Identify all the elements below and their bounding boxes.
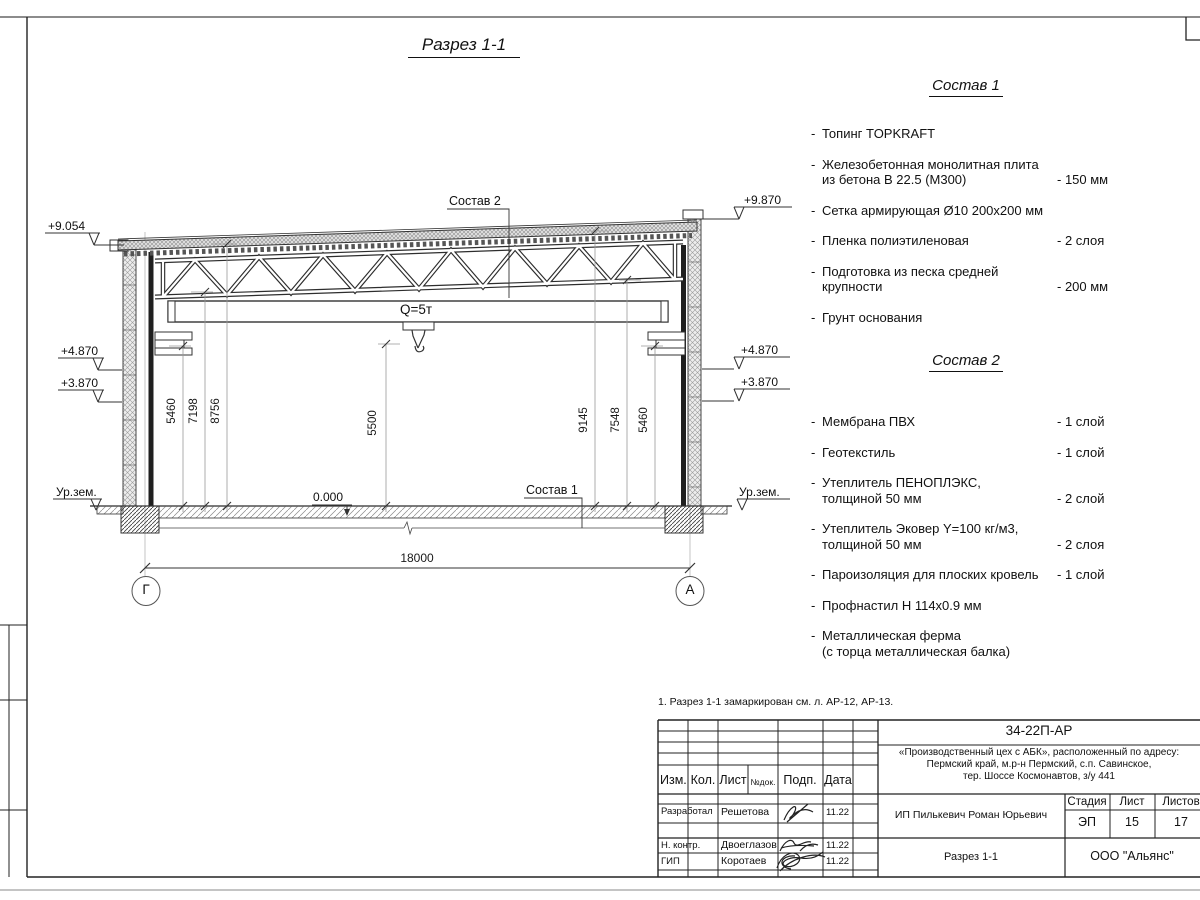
list-item: - Металлическая ферма(с торца металличес… bbox=[811, 628, 1171, 659]
row3-role: ГИП bbox=[661, 857, 680, 867]
item-text: Топинг TOPKRAFT bbox=[822, 126, 935, 142]
item-text: Железобетонная монолитная плита bbox=[822, 157, 1039, 172]
bullet: - bbox=[811, 203, 822, 219]
drawing-sheet: Разрез 1-1 Состав 2 Состав 1 Q=5т 0.000 … bbox=[0, 0, 1200, 900]
list-item: - Подготовка из песка среднейкрупности -… bbox=[811, 264, 1171, 295]
dim-span-18000: 18000 bbox=[400, 552, 433, 565]
list-item: - Топинг TOPKRAFT bbox=[811, 126, 1171, 142]
item-text: Грунт основания bbox=[822, 310, 922, 326]
level-zero-label: 0.000 bbox=[313, 491, 343, 504]
dim-5460-right: 5460 bbox=[638, 385, 650, 455]
bullet: - bbox=[811, 567, 822, 583]
project-address-3: тер. Шоссе Космонавтов, з/у 441 bbox=[963, 771, 1115, 782]
sheet-note: 1. Разрез 1-1 замаркирован см. л. АР-12,… bbox=[658, 697, 893, 709]
page-title: Разрез 1-1 bbox=[408, 36, 520, 58]
item-value: - 1 слой bbox=[1057, 445, 1105, 461]
item-text: Подготовка из песка средней bbox=[822, 264, 998, 279]
crane-trolley bbox=[403, 322, 434, 330]
bullet: - bbox=[811, 157, 822, 188]
item-value: - 2 слоя bbox=[1057, 537, 1104, 553]
list-item: - Утеплитель Эковер Y=100 кг/м3,толщиной… bbox=[811, 521, 1171, 552]
sheets-total-value: 17 bbox=[1174, 816, 1188, 830]
item-value: - 200 мм bbox=[1057, 279, 1108, 295]
item-text-2: (с торца металлическая балка) bbox=[822, 644, 1010, 659]
row2-name: Двоеглазов bbox=[721, 840, 777, 852]
item-text: Пленка полиэтиленовая bbox=[822, 233, 969, 249]
dim-7198: 7198 bbox=[188, 376, 200, 446]
item-text-2: толщиной 50 мм bbox=[822, 491, 922, 506]
item-text: Пароизоляция для плоских кровель bbox=[822, 567, 1039, 583]
dim-8756: 8756 bbox=[210, 376, 222, 446]
bullet: - bbox=[811, 628, 822, 659]
bullet: - bbox=[811, 445, 822, 461]
row3-name: Коротаев bbox=[721, 856, 766, 868]
sostav2-title: Состав 2 bbox=[929, 353, 1003, 372]
list-item: - Грунт основания bbox=[811, 310, 1171, 326]
col-ndok: №док. bbox=[751, 778, 776, 787]
ground-level-right: Ур.зем. bbox=[739, 486, 780, 499]
leader-lines bbox=[447, 209, 582, 528]
list-item: - Геотекстиль - 1 слой bbox=[811, 445, 1171, 461]
list-item: - Профнастил Н 114х0.9 мм bbox=[811, 598, 1171, 614]
elevation-left-top: +9.054 bbox=[48, 220, 85, 233]
elevation-right-top: +9.870 bbox=[744, 194, 781, 207]
stage-value: ЭП bbox=[1078, 816, 1096, 830]
roof-slab bbox=[118, 220, 697, 254]
col-data: Дата bbox=[824, 774, 852, 788]
ground-level-left: Ур.зем. bbox=[56, 486, 97, 499]
axis-letter-right: А bbox=[676, 583, 704, 598]
sostav1-leader-label: Состав 1 bbox=[526, 484, 578, 498]
client-name: ИП Пилькевич Роман Юрьевич bbox=[895, 810, 1047, 822]
bullet: - bbox=[811, 126, 822, 142]
col-podp: Подп. bbox=[783, 774, 816, 788]
list-item: - Сетка армирующая Ø10 200х200 мм bbox=[811, 203, 1171, 219]
item-text: Утеплитель ПЕНОПЛЭКС, bbox=[822, 475, 981, 490]
elevation-right-low: +3.870 bbox=[741, 376, 778, 389]
dim-5460-left: 5460 bbox=[166, 376, 178, 446]
break-mark bbox=[404, 522, 412, 534]
elevation-left-mid: +4.870 bbox=[61, 345, 98, 358]
list-item: - Утеплитель ПЕНОПЛЭКС,толщиной 50 мм - … bbox=[811, 475, 1171, 506]
sheet-no-value: 15 bbox=[1125, 816, 1139, 830]
list-item: - Мембрана ПВХ - 1 слой bbox=[811, 414, 1171, 430]
bullet: - bbox=[811, 414, 822, 430]
list-item: - Пароизоляция для плоских кровель - 1 с… bbox=[811, 567, 1171, 583]
dim-7548: 7548 bbox=[610, 385, 622, 455]
item-text: Сетка армирующая Ø10 200х200 мм bbox=[822, 203, 1043, 219]
floor-slab bbox=[90, 506, 732, 534]
sostav2-leader-label: Состав 2 bbox=[449, 195, 501, 209]
bullet: - bbox=[811, 598, 822, 614]
item-text: Мембрана ПВХ bbox=[822, 414, 915, 430]
axis-letter-left: Г bbox=[132, 583, 160, 598]
crane-hook bbox=[412, 330, 425, 352]
elevation-left-low: +3.870 bbox=[61, 377, 98, 390]
bullet: - bbox=[811, 233, 822, 249]
project-address-1: «Производственный цех с АБК», расположен… bbox=[899, 747, 1179, 758]
company-name: ООО "Альянс" bbox=[1090, 850, 1174, 864]
row1-name: Решетова bbox=[721, 807, 769, 819]
sheets-total-label: Листов bbox=[1162, 796, 1199, 809]
crane-capacity-label: Q=5т bbox=[400, 303, 432, 318]
item-value: - 1 слой bbox=[1057, 414, 1105, 430]
item-text-2: толщиной 50 мм bbox=[822, 537, 922, 552]
bullet: - bbox=[811, 475, 822, 506]
sostav1-list: - Топинг TOPKRAFT - Железобетонная монол… bbox=[811, 126, 1171, 340]
dim-5500: 5500 bbox=[367, 388, 379, 458]
roof-truss bbox=[155, 242, 683, 297]
col-list: Лист bbox=[719, 774, 746, 788]
bullet: - bbox=[811, 264, 822, 295]
sheet-name: Разрез 1-1 bbox=[944, 851, 998, 863]
item-text: Металлическая ферма bbox=[822, 628, 961, 643]
sostav2-list: - Мембрана ПВХ - 1 слой - Геотекстиль - … bbox=[811, 414, 1171, 674]
row3-date: 11.22 bbox=[826, 857, 849, 867]
item-text-2: крупности bbox=[822, 279, 882, 294]
item-value: - 2 слой bbox=[1057, 491, 1105, 507]
doc-number: 34-22П-АР bbox=[1006, 724, 1073, 739]
sheet-no-label: Лист bbox=[1120, 796, 1145, 809]
item-text: Геотекстиль bbox=[822, 445, 895, 461]
item-value: - 1 слой bbox=[1057, 567, 1105, 583]
item-text: Профнастил Н 114х0.9 мм bbox=[822, 598, 982, 614]
stage-label: Стадия bbox=[1067, 796, 1106, 809]
item-value: - 150 мм bbox=[1057, 172, 1108, 188]
bullet: - bbox=[811, 521, 822, 552]
item-text: Утеплитель Эковер Y=100 кг/м3, bbox=[822, 521, 1018, 536]
project-address-2: Пермский край, м.р-н Пермский, с.п. Сави… bbox=[927, 759, 1152, 770]
row1-role: Разработал bbox=[661, 807, 713, 817]
foundation-left bbox=[121, 506, 159, 533]
sostav1-title: Состав 1 bbox=[929, 78, 1003, 97]
col-kol: Кол. bbox=[691, 774, 716, 788]
row2-role: Н. контр. bbox=[661, 841, 700, 851]
foundation-right bbox=[665, 506, 703, 533]
col-izm: Изм. bbox=[660, 774, 687, 788]
list-item: - Железобетонная монолитная плитаиз бето… bbox=[811, 157, 1171, 188]
item-text-2: из бетона В 22.5 (М300) bbox=[822, 172, 966, 187]
dim-9145: 9145 bbox=[578, 385, 590, 455]
list-item: - Пленка полиэтиленовая - 2 слоя bbox=[811, 233, 1171, 249]
elevation-right-mid: +4.870 bbox=[741, 344, 778, 357]
bullet: - bbox=[811, 310, 822, 326]
item-value: - 2 слоя bbox=[1057, 233, 1104, 249]
row2-date: 11.22 bbox=[826, 841, 849, 851]
row1-date: 11.22 bbox=[826, 808, 849, 818]
